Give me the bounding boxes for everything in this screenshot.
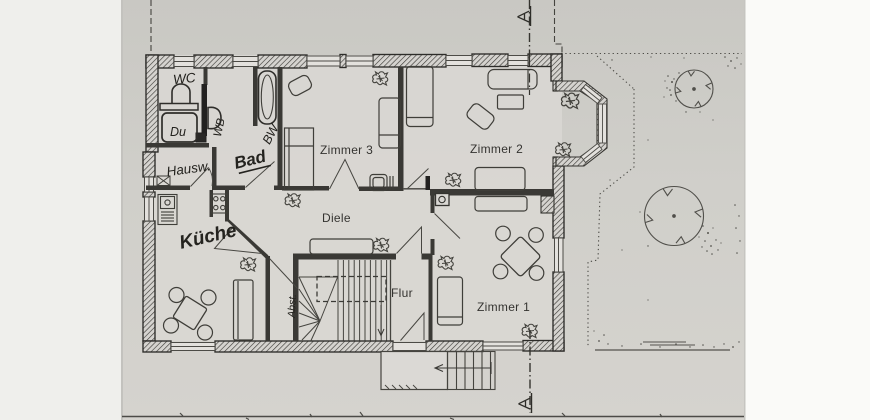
svg-text:Zimmer 3: Zimmer 3 bbox=[320, 143, 373, 157]
svg-text:Zimmer 2: Zimmer 2 bbox=[470, 142, 523, 156]
svg-text:WC: WC bbox=[172, 70, 196, 87]
svg-text:Diele: Diele bbox=[322, 211, 351, 225]
svg-text:Abst.: Abst. bbox=[286, 294, 299, 320]
svg-text:Flur: Flur bbox=[391, 286, 413, 300]
svg-text:Du: Du bbox=[170, 125, 186, 139]
svg-text:Zimmer 1: Zimmer 1 bbox=[477, 300, 530, 314]
